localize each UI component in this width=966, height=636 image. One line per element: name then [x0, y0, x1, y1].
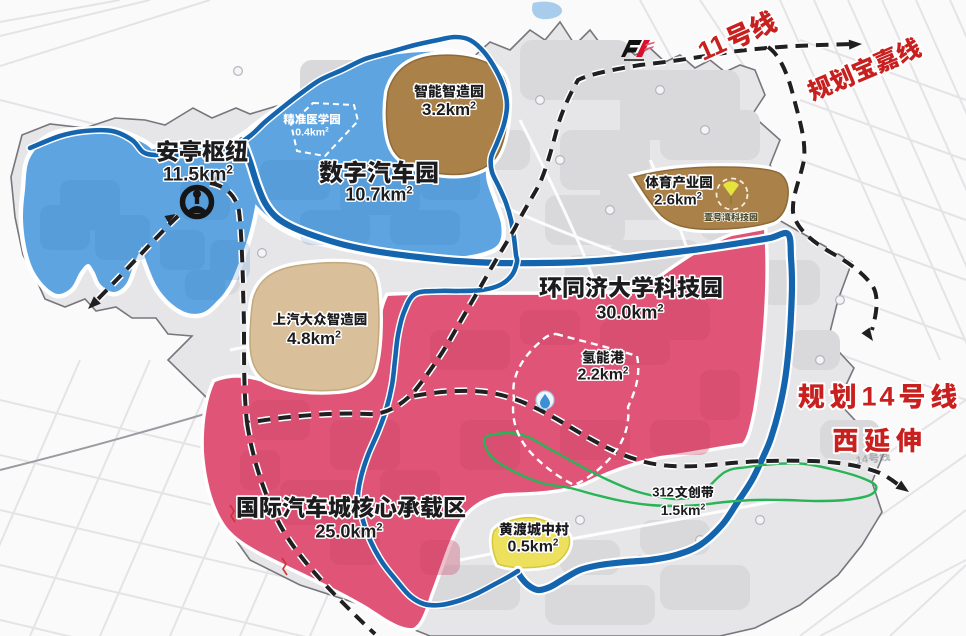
svg-text:1.5km2: 1.5km2: [661, 502, 706, 518]
svg-text:10.7km2: 10.7km2: [345, 184, 412, 204]
svg-text:0.4km2: 0.4km2: [295, 127, 329, 139]
svg-text:2.6km2: 2.6km2: [654, 191, 702, 209]
svg-text:14: 14: [862, 381, 898, 411]
svg-text:0.5km2: 0.5km2: [508, 538, 559, 556]
svg-text:4.8km2: 4.8km2: [287, 328, 341, 347]
svg-text:30.0km2: 30.0km2: [596, 302, 663, 322]
svg-text:3.2km2: 3.2km2: [422, 99, 476, 118]
svg-text:11.5km2: 11.5km2: [163, 163, 233, 185]
svg-text:312: 312: [652, 485, 674, 500]
svg-text:25.0km2: 25.0km2: [315, 521, 382, 541]
svg-text:2.2km2: 2.2km2: [578, 366, 629, 384]
